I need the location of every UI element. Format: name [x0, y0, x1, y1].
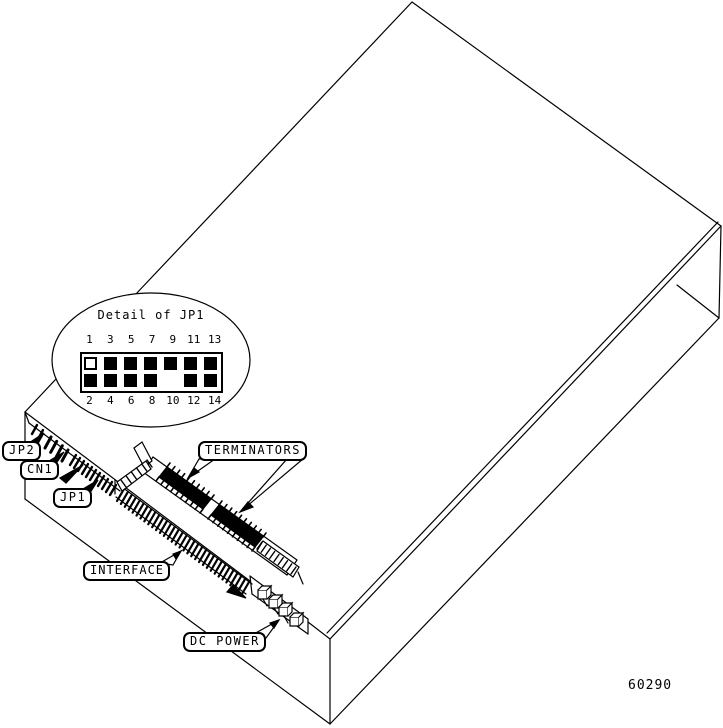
terminators-arrow-right-tip [240, 502, 253, 512]
jumper-pin-filled [164, 357, 177, 370]
jumper-pin-filled [144, 374, 157, 387]
pin-number-label: 3 [100, 333, 121, 345]
jumper-pin-open [84, 357, 97, 370]
jumper-pin-filled [104, 357, 117, 370]
jp1-jumper-block [80, 352, 223, 393]
cn1-arrow [60, 465, 83, 483]
cn1-label: CN1 [20, 460, 59, 480]
jumper-pin-filled [184, 374, 197, 387]
jumper-pin-filled [84, 374, 97, 387]
jp1-label: JP1 [53, 488, 92, 508]
pin-number-label: 6 [121, 394, 142, 406]
dc-power-label: DC POWER [183, 632, 266, 652]
jumper-pin-filled [204, 374, 217, 387]
pin-number-label: 8 [142, 394, 163, 406]
detail-top-pin-labels: 135791113 [79, 333, 225, 345]
detail-inset-title: Detail of JP1 [68, 308, 234, 322]
jumper-pin-filled [184, 357, 197, 370]
figure-number: 60290 [628, 678, 672, 693]
dc-power-connector [250, 576, 308, 634]
detail-bottom-pin-labels: 2468101214 [79, 394, 225, 406]
pin-number-label: 11 [183, 333, 204, 345]
pin-number-label: 5 [121, 333, 142, 345]
dc-power-pin-3 [279, 603, 292, 616]
pin-number-label: 1 [79, 333, 100, 345]
jumper-pin-filled [124, 374, 137, 387]
jp2-label: JP2 [2, 441, 41, 461]
pin-number-label: 4 [100, 394, 121, 406]
pin-number-label: 14 [204, 394, 225, 406]
jumper-row-bottom [82, 374, 221, 387]
jumper-pin-filled [204, 357, 217, 370]
terminators-label: TERMINATORS [198, 441, 307, 461]
pin-number-label: 7 [142, 333, 163, 345]
interface-label: INTERFACE [83, 561, 170, 581]
pin-number-label: 12 [183, 394, 204, 406]
jumper-pin-filled [124, 357, 137, 370]
pin-number-label: 9 [162, 333, 183, 345]
drive-connector-diagram: Detail of JP1 135791113 2468101214 JP2 C… [0, 0, 723, 728]
pin-number-label: 10 [162, 394, 183, 406]
pin-number-label: 13 [204, 333, 225, 345]
pin-number-label: 2 [79, 394, 100, 406]
dc-power-pin-1 [258, 586, 271, 599]
dc-power-pin-4 [290, 613, 303, 626]
jumper-pin-filled [144, 357, 157, 370]
jumper-pin-filled [104, 374, 117, 387]
jumper-row-top [82, 357, 221, 370]
